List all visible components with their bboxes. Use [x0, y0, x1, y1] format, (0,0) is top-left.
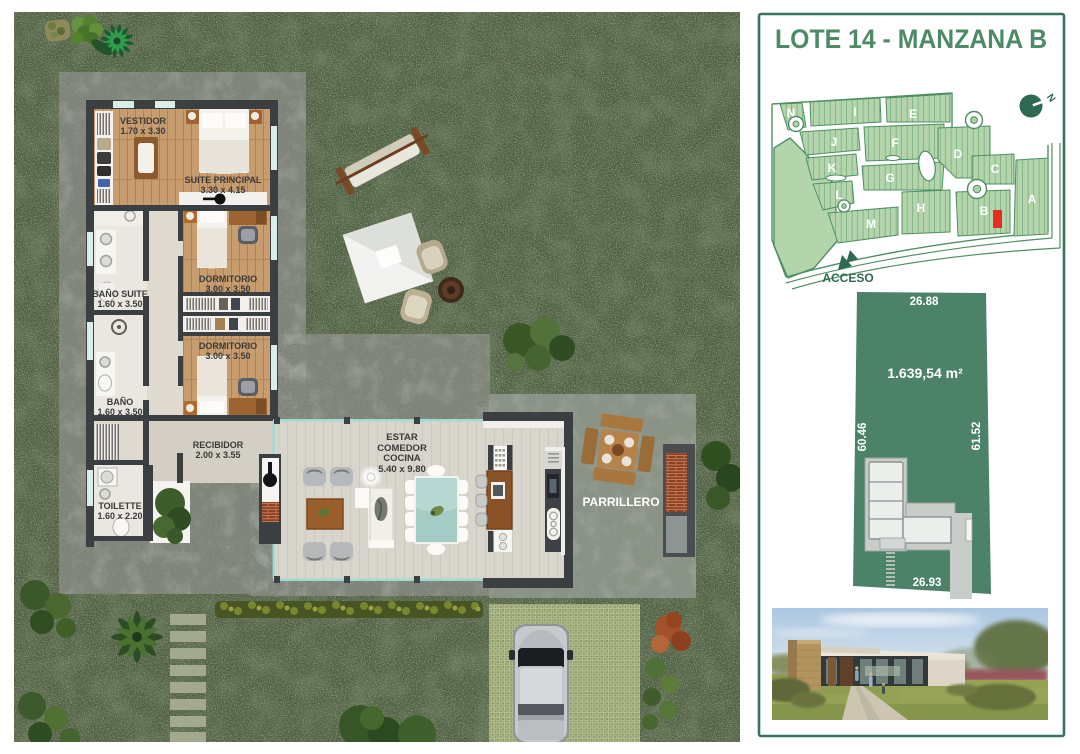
svg-text:C: C: [991, 162, 1000, 176]
svg-text:DORMITORIO: DORMITORIO: [199, 274, 257, 284]
svg-text:D: D: [954, 147, 963, 161]
svg-text:PARRILLERO: PARRILLERO: [582, 495, 659, 509]
svg-text:61.52: 61.52: [971, 422, 983, 451]
svg-text:J: J: [831, 135, 838, 149]
svg-text:M: M: [866, 217, 876, 231]
svg-text:2.00 x 3.55: 2.00 x 3.55: [195, 450, 240, 460]
svg-text:B: B: [980, 204, 989, 218]
svg-text:A: A: [1028, 192, 1037, 206]
svg-text:SUITE PRINCIPAL: SUITE PRINCIPAL: [185, 175, 262, 185]
svg-text:3.30 x 4.15: 3.30 x 4.15: [200, 185, 245, 195]
svg-text:E: E: [909, 107, 917, 121]
svg-text:1.60 x 2.20: 1.60 x 2.20: [97, 511, 142, 521]
svg-text:3.00 x 3.50: 3.00 x 3.50: [205, 351, 250, 361]
svg-text:60.46: 60.46: [857, 423, 869, 452]
svg-text:LOTE 14 - MANZANA B: LOTE 14 - MANZANA B: [775, 24, 1047, 54]
svg-text:I: I: [853, 105, 856, 119]
svg-text:G: G: [885, 171, 894, 185]
svg-text:ESTAR: ESTAR: [386, 432, 418, 443]
svg-text:1.639,54 m²: 1.639,54 m²: [887, 365, 963, 381]
svg-text:COCINA: COCINA: [383, 453, 421, 464]
svg-text:F: F: [891, 136, 898, 150]
svg-text:1.60 x 3.50: 1.60 x 3.50: [97, 299, 142, 309]
svg-text:3.00 x 3.50: 3.00 x 3.50: [205, 284, 250, 294]
svg-text:BAÑO SUITE: BAÑO SUITE: [92, 289, 148, 299]
svg-text:BAÑO: BAÑO: [107, 397, 134, 407]
svg-text:26.93: 26.93: [913, 577, 942, 589]
svg-text:1.60 x 3.50: 1.60 x 3.50: [97, 407, 142, 417]
svg-text:5.40 x 9.80: 5.40 x 9.80: [378, 464, 426, 475]
svg-text:K: K: [828, 161, 837, 175]
svg-text:1.70 x 3.30: 1.70 x 3.30: [120, 126, 165, 136]
svg-text:ACCESO: ACCESO: [822, 271, 873, 285]
svg-text:TOILETTE: TOILETTE: [98, 501, 141, 511]
svg-text:26.88: 26.88: [910, 296, 939, 308]
svg-text:VESTIDOR: VESTIDOR: [120, 116, 167, 126]
svg-text:RECIBIDOR: RECIBIDOR: [193, 440, 244, 450]
svg-text:H: H: [917, 201, 926, 215]
svg-text:DORMITORIO: DORMITORIO: [199, 341, 257, 351]
